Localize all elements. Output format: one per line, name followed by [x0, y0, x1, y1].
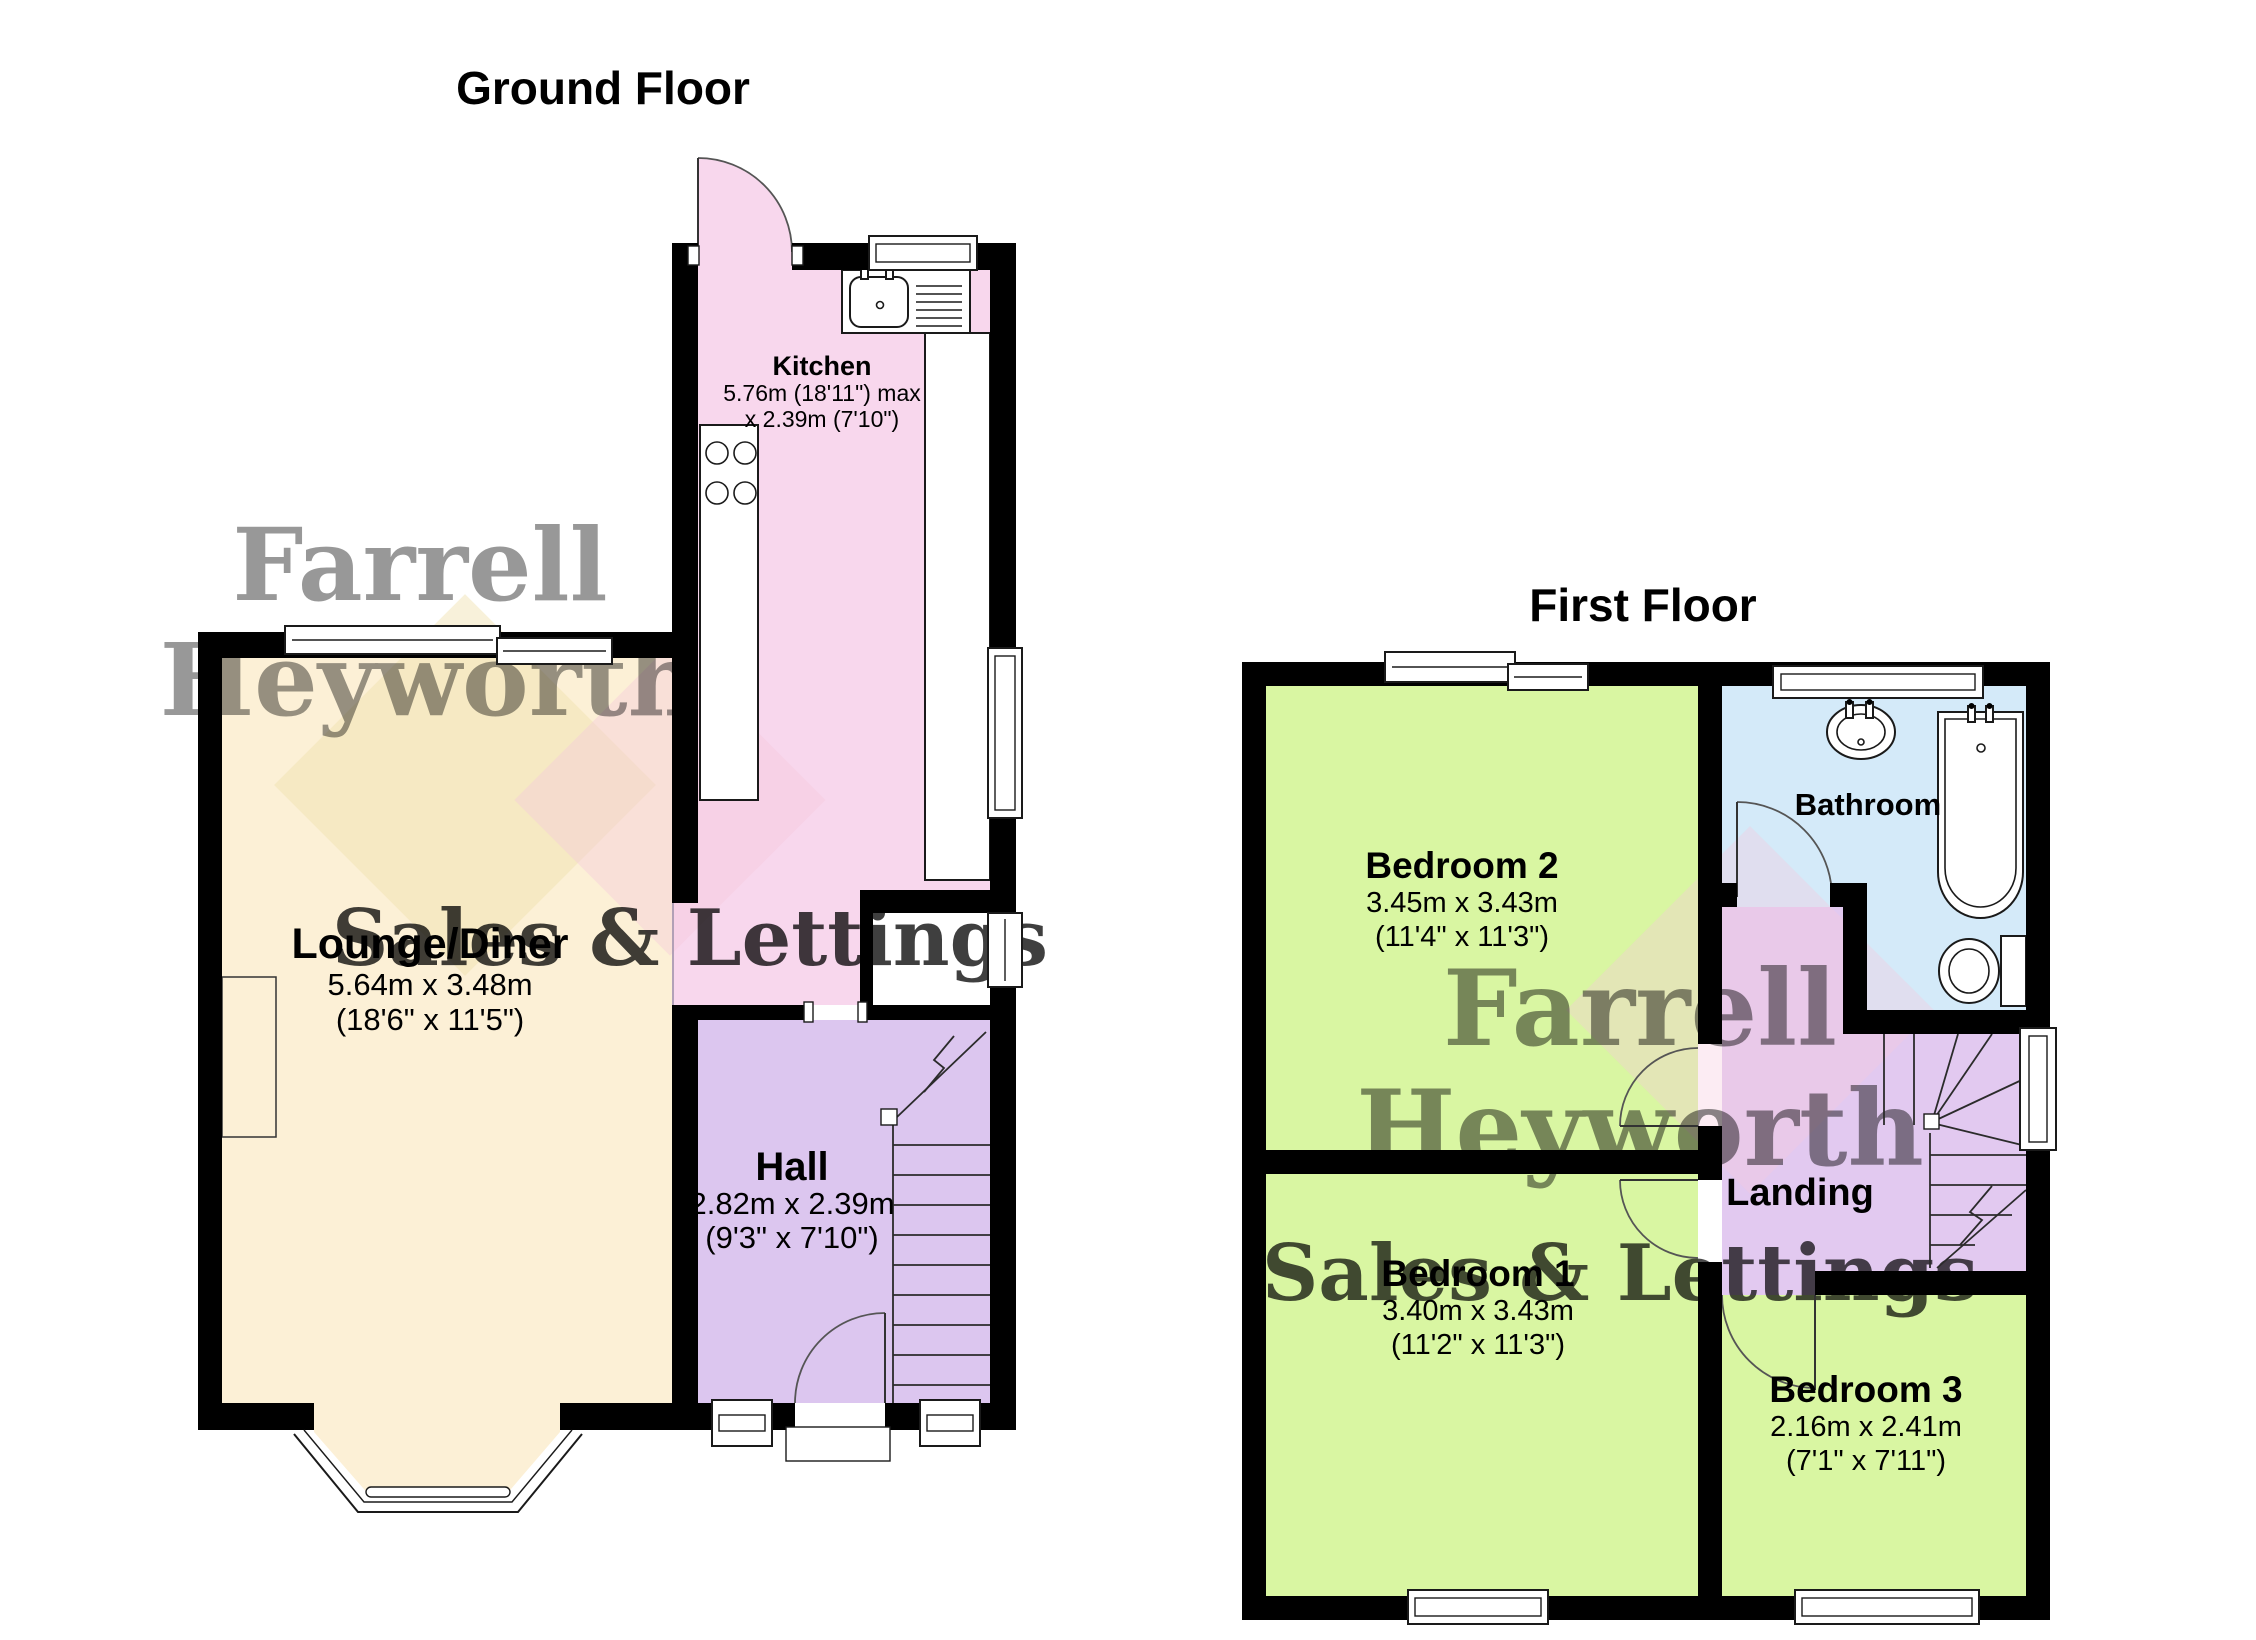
floorplan-page: Farrell Heyworth Sales & Lettings Farrel… — [0, 0, 2256, 1640]
toilet — [1939, 936, 2026, 1006]
window — [712, 1400, 772, 1446]
label-kitchen-name: Kitchen — [772, 351, 871, 381]
label-bedroom3-dims-metric: 2.16m x 2.41m — [1770, 1411, 1962, 1443]
wall — [1266, 1150, 1698, 1174]
lounge-bay-floor — [314, 1403, 560, 1496]
wall — [672, 243, 698, 903]
wall — [990, 818, 1016, 913]
window — [988, 913, 1022, 987]
wall — [860, 890, 990, 913]
label-bedroom3-dims-imperial: (7'1" x 7'11") — [1786, 1445, 1946, 1477]
kitchen-hob — [700, 425, 758, 800]
door-frame — [792, 246, 803, 265]
wall — [1698, 1262, 1722, 1596]
wall — [1242, 662, 1266, 1620]
wall — [1815, 1271, 2026, 1295]
stair-newel — [1924, 1114, 1939, 1129]
wall — [860, 1005, 990, 1020]
window — [1508, 664, 1588, 690]
wall — [1843, 907, 1867, 1010]
label-bedroom1-dims-imperial: (11'2" x 11'3") — [1391, 1329, 1565, 1361]
watermark-text: Farrell — [232, 506, 607, 624]
wall — [198, 1403, 314, 1430]
label-landing-name: Landing — [1726, 1172, 1874, 1214]
window — [869, 236, 977, 270]
wall — [1722, 883, 1737, 907]
wall — [860, 913, 873, 1007]
label-bathroom-name: Bathroom — [1795, 787, 1941, 822]
label-bedroom2-dims-metric: 3.45m x 3.43m — [1366, 887, 1558, 919]
window — [1773, 666, 1983, 698]
front-door-step — [786, 1427, 890, 1461]
fireplace — [222, 977, 276, 1137]
door-frame — [858, 1002, 867, 1022]
window — [1408, 1590, 1548, 1624]
wall — [990, 243, 1016, 648]
stair-newel — [881, 1109, 897, 1125]
label-kitchen-dims-metric: 5.76m (18'11") max — [723, 380, 921, 406]
bathtub — [1938, 703, 2023, 918]
label-bedroom1-dims-metric: 3.40m x 3.43m — [1382, 1295, 1574, 1327]
wall — [198, 632, 222, 1430]
wall — [1843, 1010, 2026, 1034]
label-bedroom1-name: Bedroom 1 — [1381, 1253, 1574, 1294]
label-bedroom2-name: Bedroom 2 — [1365, 845, 1558, 886]
door-frame — [804, 1002, 813, 1022]
label-hall-name: Hall — [755, 1145, 828, 1189]
label-bedroom3-name: Bedroom 3 — [1769, 1369, 1962, 1410]
wall — [1698, 686, 1722, 1044]
watermark-text: Farrell — [1443, 946, 1837, 1070]
label-lounge-dims-metric: 5.64m x 3.48m — [327, 967, 532, 1002]
window — [1385, 652, 1515, 682]
window — [920, 1400, 980, 1446]
floorplan-canvas: Farrell Heyworth Sales & Lettings Farrel… — [0, 0, 2256, 1640]
door-frame — [688, 246, 699, 265]
window — [1795, 1590, 1979, 1624]
kitchen-door-swing — [698, 158, 792, 252]
window — [285, 626, 500, 654]
window — [497, 638, 612, 664]
kitchen-counter — [925, 333, 990, 880]
window — [2020, 1028, 2056, 1150]
label-lounge-dims-imperial: (18'6" x 11'5") — [336, 1002, 524, 1037]
ground-floor-title: Ground Floor — [456, 62, 750, 114]
first-floor-title: First Floor — [1529, 579, 1757, 631]
wall — [990, 987, 1016, 1403]
wall — [672, 1005, 812, 1020]
label-bedroom2-dims-imperial: (11'4" x 11'3") — [1375, 921, 1549, 953]
window — [988, 648, 1022, 818]
label-hall-dims-metric: 2.82m x 2.39m — [689, 1186, 894, 1221]
label-kitchen-dims-imperial: x 2.39m (7'10") — [745, 406, 899, 432]
wall — [1830, 883, 1867, 907]
wall — [1698, 1126, 1722, 1180]
label-lounge-name: Lounge/Diner — [291, 920, 568, 968]
label-hall-dims-imperial: (9'3" x 7'10") — [705, 1220, 878, 1255]
